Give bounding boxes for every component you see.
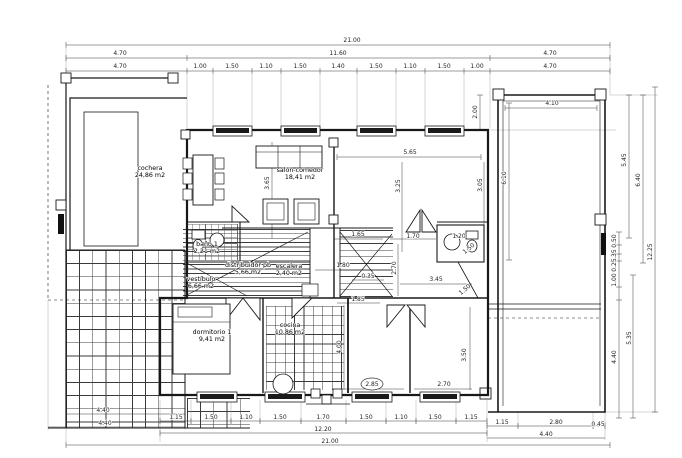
dimension-label: 1.50 [204, 414, 218, 421]
dimension-label: 11.60 [329, 50, 346, 57]
room-label: 5,66 m2 [235, 269, 261, 276]
dimension-label: 1.10 [394, 414, 408, 421]
kitchen-door [292, 298, 312, 318]
floor-plan-drawing: 21.004.7011.604.704.701.001.501.101.501.… [0, 0, 682, 458]
room-label: cocina [280, 322, 301, 329]
room-label: salón-comedor [277, 166, 324, 174]
dimension-label: 1.50 [225, 63, 239, 70]
dimension-label: 3.50 [461, 348, 468, 362]
room-label: 24,86 m2 [135, 172, 165, 179]
living-room-door [232, 206, 249, 222]
dimension-label: 4.40 [539, 431, 553, 438]
room-label: 6,66 m2 [188, 283, 214, 290]
room-label: 10,86 m2 [275, 329, 305, 336]
dimension-label: 4.00 [336, 340, 343, 354]
dimension-label: 0.25 [611, 258, 618, 272]
dimension-label: 1.50 [428, 414, 442, 421]
dining-table [193, 155, 213, 205]
dimension-label: 1.15 [495, 419, 509, 426]
room-label: escalera [276, 263, 303, 270]
room-label: 9,41 m2 [199, 336, 225, 343]
dimension-label: 4.40 [611, 350, 618, 364]
dimension-label: 3.05 [477, 178, 484, 192]
dimension-label: 1.85 [351, 296, 365, 303]
dimension-label: 4.70 [113, 50, 127, 57]
room-label: vestíbulo [187, 275, 216, 283]
dimension-label: 1.65 [351, 231, 365, 238]
room-label: dormitorio 1 [193, 329, 232, 336]
dimension-label: 0.45 [591, 421, 605, 428]
sofa [256, 146, 322, 168]
dimension-label: 4.40 [96, 407, 110, 414]
dimension-label: 6.10 [501, 171, 508, 185]
dimension-label: 4.70 [113, 63, 127, 70]
dimension-label: 1.10 [239, 414, 253, 421]
dimension-label: 21.00 [321, 438, 338, 445]
kitchen-sink [273, 374, 293, 394]
patio-gate [601, 233, 606, 255]
entrance-porch [306, 389, 350, 404]
dimension-label: 2.70 [437, 381, 451, 388]
fixtures [192, 230, 478, 394]
dimension-label: 2.85 [365, 381, 379, 388]
room-label: 2,40 m2 [276, 270, 302, 277]
right-patio [480, 89, 606, 412]
dimension-label: 1.70 [406, 233, 420, 240]
dimension-label: 2.00 [472, 105, 479, 119]
dimension-label: 0.50 [611, 234, 618, 248]
dimension-label: 2.70 [391, 261, 398, 275]
dimension-label: 1.50 [293, 63, 307, 70]
dimension-label: 3.45 [429, 276, 443, 283]
dimension-label: 1.80 [336, 262, 350, 269]
dimension-label: 1.10 [259, 63, 273, 70]
dimension-label: 4.70 [543, 63, 557, 70]
bedroom-door-right [243, 298, 260, 320]
dimension-label: 1.10 [403, 63, 417, 70]
dimension-label: 1.00 [193, 63, 207, 70]
dimension-label: 1.00 [470, 63, 484, 70]
dimension-label: 1.40 [331, 63, 345, 70]
dimension-label: 1.20 [452, 233, 466, 240]
dimension-label: 1.50 [369, 63, 383, 70]
dimension-label: 1.15 [464, 414, 478, 421]
dimension-label: 1.50 [437, 63, 451, 70]
dimension-label: 1.50 [359, 414, 373, 421]
dimension-label: 4.70 [543, 50, 557, 57]
dimension-lines [48, 42, 658, 448]
dimension-label: 4.40 [98, 420, 112, 427]
extension-lines [48, 48, 658, 442]
dimension-label: 12.20 [314, 426, 331, 433]
dimension-label: 3.65 [264, 176, 271, 190]
dimension-label: 4.10 [545, 100, 559, 107]
room-label: distribuidor pb [225, 262, 271, 269]
garage-gate [58, 214, 64, 234]
room-label: 2,21 m2 [194, 248, 220, 255]
room-label: cochera [137, 165, 162, 172]
room3-door [387, 305, 405, 327]
dimension-label: 1.50 [273, 414, 287, 421]
dimension-label: 3.25 [395, 179, 402, 193]
dimension-label: 1.15 [169, 414, 183, 421]
dimension-label: 5.35 [626, 331, 633, 345]
room-label: 18,41 m2 [285, 174, 315, 181]
dimension-label: 1.70 [316, 414, 330, 421]
dimension-label: 6.40 [635, 173, 642, 187]
room-label: baño 1 [196, 241, 218, 248]
dimension-label: 5.45 [621, 153, 628, 167]
floor-plan-page: 21.004.7011.604.704.701.001.501.101.501.… [0, 0, 682, 458]
dimension-label: 21.00 [343, 37, 360, 44]
dimension-label: 0.35 [361, 273, 375, 280]
wc-door-right [422, 210, 436, 232]
armchairs [263, 199, 319, 224]
dimension-label: 2.80 [549, 419, 563, 426]
dimension-label: 12.25 [647, 243, 654, 260]
wc-door-left [406, 210, 420, 232]
dimension-label: 1.00 [611, 273, 618, 287]
dimension-label: 5.65 [403, 149, 417, 156]
